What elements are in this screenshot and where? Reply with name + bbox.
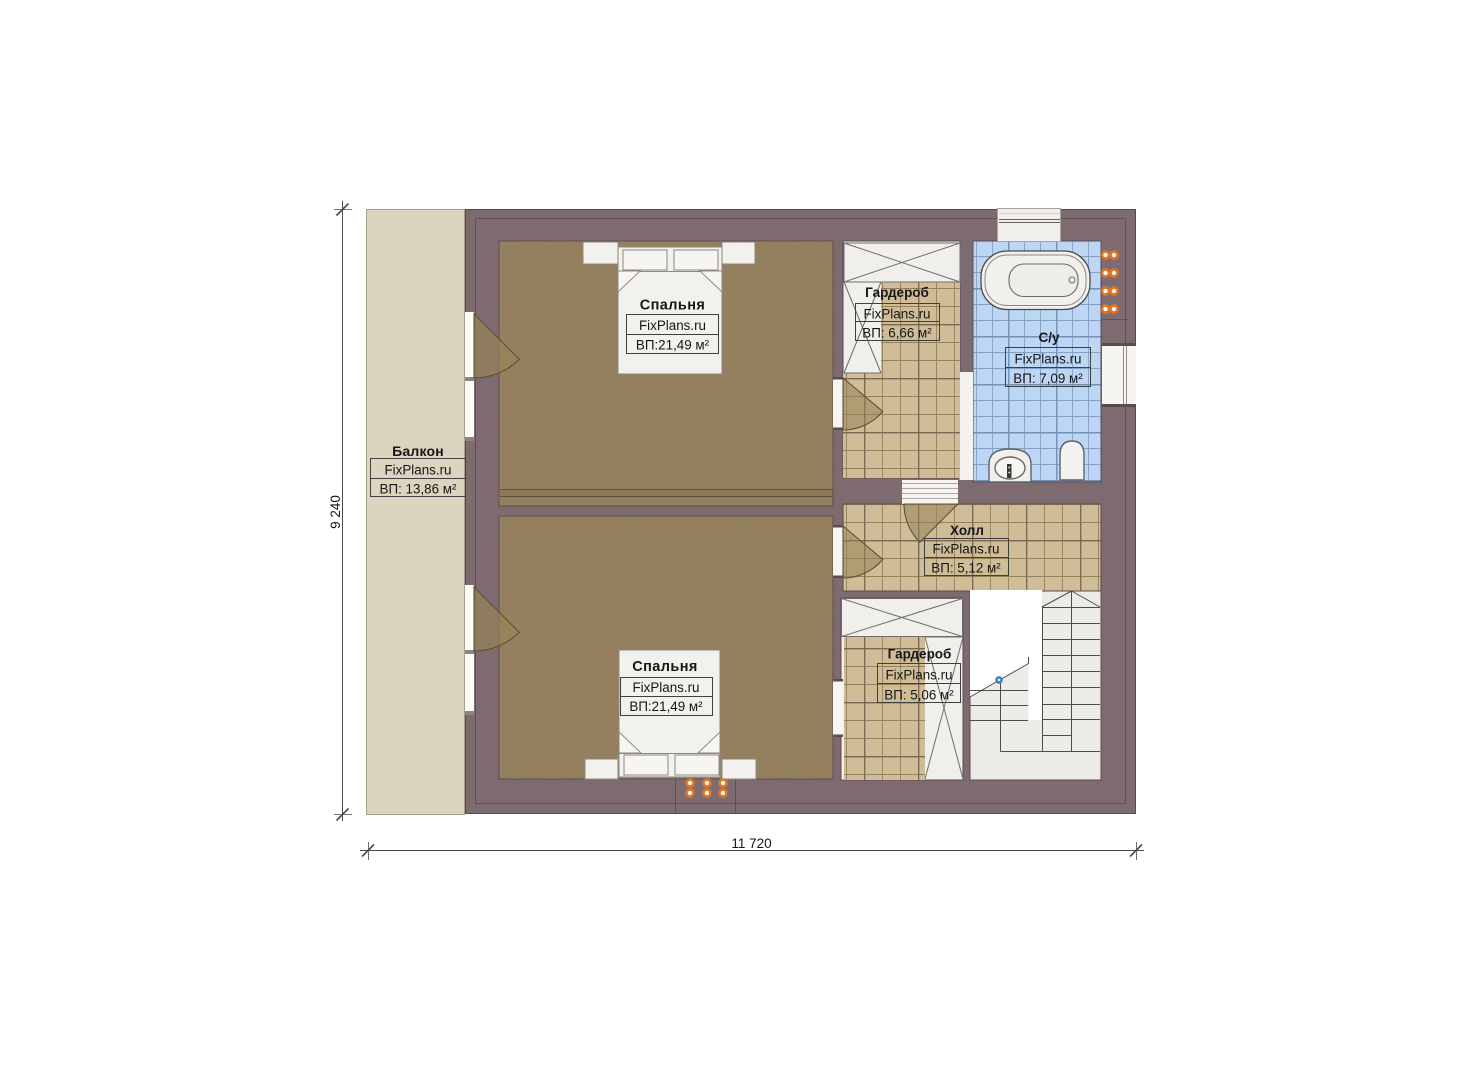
svg-text:FixPlans.ru: FixPlans.ru (1015, 352, 1082, 367)
svg-text:Балкон: Балкон (392, 443, 444, 459)
svg-text:Холл: Холл (950, 523, 984, 538)
svg-text:11 720: 11 720 (731, 836, 771, 851)
svg-text:ВП: 5,06 м²: ВП: 5,06 м² (884, 688, 954, 703)
svg-text:FixPlans.ru: FixPlans.ru (886, 668, 953, 683)
svg-text:ВП: 6,66 м²: ВП: 6,66 м² (862, 326, 932, 341)
svg-text:9 240: 9 240 (328, 495, 343, 529)
svg-text:FixPlans.ru: FixPlans.ru (864, 307, 931, 322)
svg-text:ВП: 13,86 м²: ВП: 13,86 м² (380, 482, 457, 497)
svg-text:Спальня: Спальня (632, 659, 697, 675)
svg-text:ВП: 7,09 м²: ВП: 7,09 м² (1013, 371, 1083, 386)
svg-text:Спальня: Спальня (640, 298, 705, 314)
svg-text:ВП: 5,12 м²: ВП: 5,12 м² (931, 561, 1001, 576)
svg-text:FixPlans.ru: FixPlans.ru (385, 463, 452, 478)
svg-text:Гардероб: Гардероб (865, 285, 929, 300)
svg-text:FixPlans.ru: FixPlans.ru (633, 680, 700, 695)
svg-text:FixPlans.ru: FixPlans.ru (933, 542, 1000, 557)
svg-text:FixPlans.ru: FixPlans.ru (639, 318, 706, 333)
svg-text:ВП:21,49 м²: ВП:21,49 м² (629, 699, 703, 714)
svg-text:С/у: С/у (1038, 330, 1060, 345)
svg-text:Гардероб: Гардероб (888, 647, 952, 662)
svg-text:ВП:21,49 м²: ВП:21,49 м² (636, 338, 710, 353)
